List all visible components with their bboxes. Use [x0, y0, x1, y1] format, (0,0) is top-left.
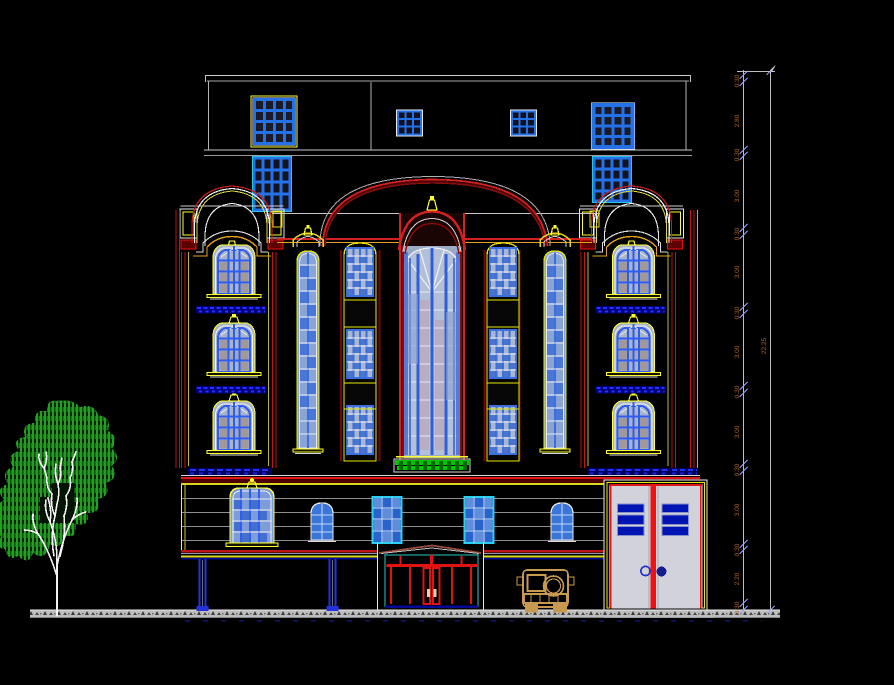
svg-text:3.00: 3.00 [734, 265, 741, 278]
svg-text:2.80: 2.80 [734, 114, 741, 127]
svg-text:0.30: 0.30 [734, 463, 741, 476]
svg-text:2.20: 2.20 [734, 572, 741, 585]
svg-text:0.30: 0.30 [734, 74, 741, 87]
svg-text:0.30: 0.30 [734, 385, 741, 398]
svg-text:0.30: 0.30 [734, 306, 741, 319]
svg-text:0.30: 0.30 [734, 227, 741, 240]
svg-text:22.25: 22.25 [761, 337, 768, 354]
svg-text:3.00: 3.00 [734, 189, 741, 202]
svg-text:0.30: 0.30 [734, 543, 741, 556]
svg-text:3.00: 3.00 [734, 503, 741, 516]
svg-text:0.30: 0.30 [734, 148, 741, 161]
svg-text:0.30: 0.30 [734, 601, 741, 614]
svg-text:3.00: 3.00 [734, 425, 741, 438]
svg-text:3.00: 3.00 [734, 345, 741, 358]
